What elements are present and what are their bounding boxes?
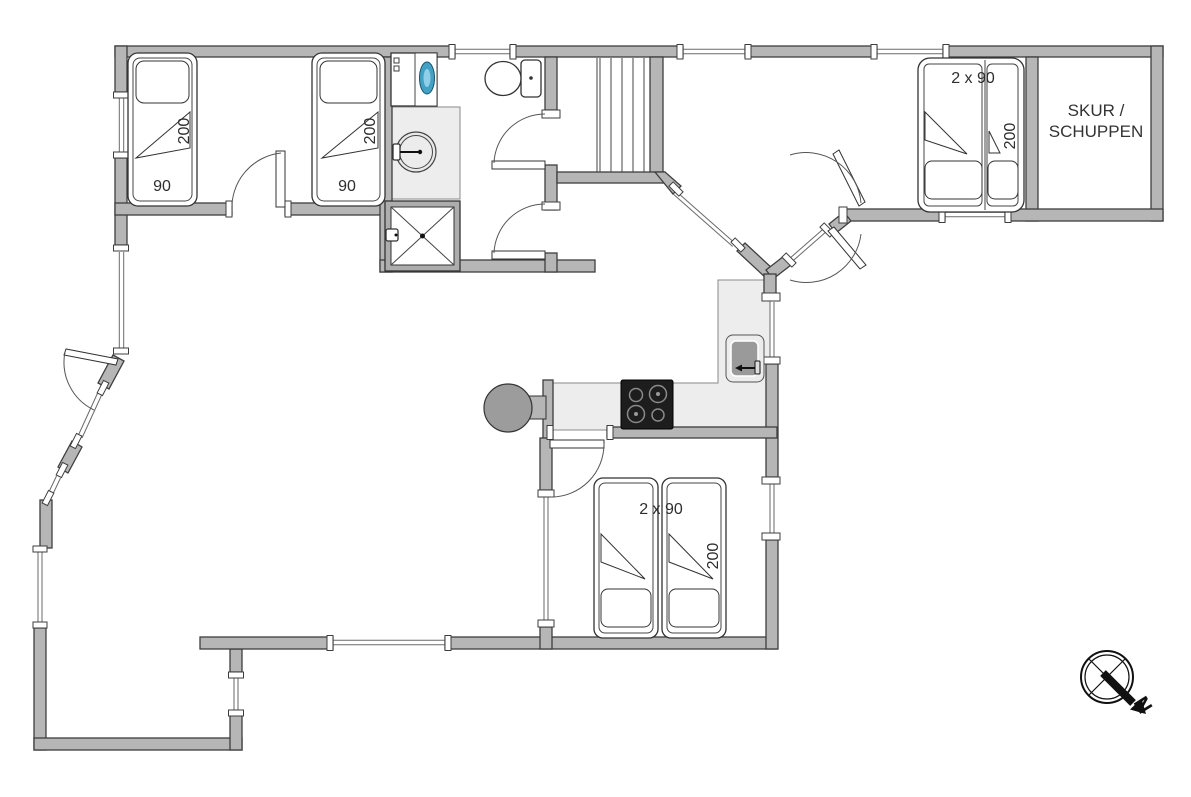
compass-north-label: N [1129,693,1157,718]
cooktop-icon [621,380,673,429]
bed3-length-label: 200 [1002,123,1019,150]
shed-label-line1: SKUR / [1068,101,1125,120]
shower-icon [385,201,460,271]
room-labels: SKUR / SCHUPPEN [1049,101,1143,141]
washing-machine-icon [391,53,437,106]
door-wc [492,114,545,169]
bed4-size-label: 2 x 90 [639,501,683,518]
dimension-labels: 200 90 200 90 2 x 90 200 2 x 90 200 [153,70,1019,569]
floorplan-page: 200 90 200 90 2 x 90 200 2 x 90 200 SKUR… [0,0,1191,797]
bed2-width-label: 90 [338,178,356,195]
kitchen-sink-icon [726,335,764,382]
shed-label-line2: SCHUPPEN [1049,122,1143,141]
toilet-icon [485,60,541,97]
door-bedroom1 [232,151,285,211]
door-hall-upper [790,150,865,206]
bed3-size-label: 2 x 90 [951,70,995,87]
bed2-length-label: 200 [362,118,379,145]
bed1-length-label: 200 [176,118,193,145]
wood-stove-icon [484,384,546,432]
compass-north-icon: N [1081,651,1156,718]
bed1-width-label: 90 [153,178,171,195]
floorplan-drawing: 200 90 200 90 2 x 90 200 2 x 90 200 SKUR… [0,0,1191,797]
bed4-length-label: 200 [705,543,722,570]
stairs-icon [597,58,644,172]
door-bathroom [492,204,545,259]
